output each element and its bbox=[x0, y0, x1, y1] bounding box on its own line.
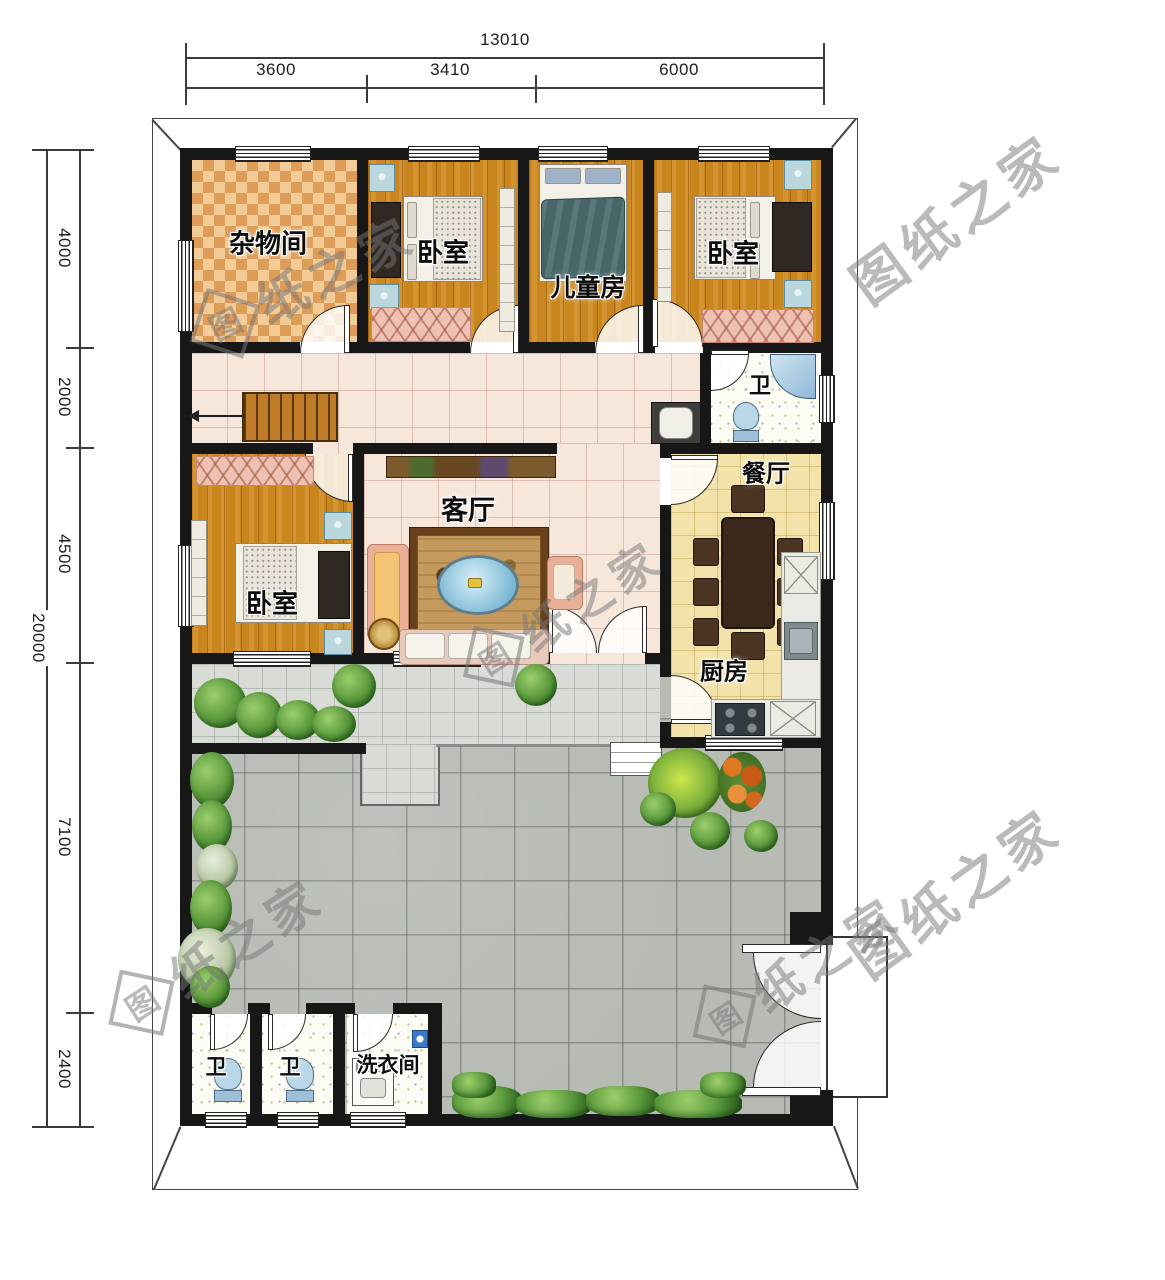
dining-table bbox=[721, 517, 775, 629]
dim-top-total-label: 13010 bbox=[477, 30, 533, 50]
kitchen-prep-area bbox=[784, 556, 818, 594]
dim-top-seg-label-1: 3600 bbox=[253, 60, 299, 80]
watermark-logo-icon: 图 bbox=[463, 626, 525, 688]
staircase bbox=[242, 392, 338, 442]
dim-left-seg-tick-4 bbox=[66, 1012, 94, 1014]
bedroom2-bench bbox=[702, 309, 814, 343]
dim-left-seg-label-2: 2000 bbox=[54, 374, 74, 420]
window-bedroom1-top bbox=[408, 146, 480, 162]
wall-h2-b bbox=[353, 443, 557, 454]
wall-h2-a bbox=[190, 443, 313, 454]
sofa-bottom-cushion-1 bbox=[405, 633, 445, 659]
south-hedge-3 bbox=[586, 1086, 660, 1116]
bath1-door-leaf bbox=[210, 1014, 215, 1050]
terrace-step bbox=[360, 744, 440, 806]
label-living: 客厅 bbox=[441, 489, 495, 528]
label-laundry: 洗衣间 bbox=[357, 1049, 420, 1079]
dim-top-seg-label-2: 3410 bbox=[427, 60, 473, 80]
dining-chair-left-1 bbox=[693, 538, 719, 566]
courtyard-bush-small-2 bbox=[690, 812, 730, 850]
label-bedroom-top-left: 卧室 bbox=[417, 233, 469, 270]
entry-door-bottom-leaf bbox=[742, 1087, 821, 1096]
dining-door-leaf bbox=[671, 455, 718, 460]
toilet-bath1-tank bbox=[214, 1090, 242, 1102]
window-storage-top bbox=[235, 146, 311, 162]
bedroom-middle-bench bbox=[196, 456, 314, 486]
dim-left-tick-top bbox=[32, 149, 94, 151]
kids-door-leaf bbox=[638, 305, 644, 353]
bedroom-middle-nightstand-bottom bbox=[324, 629, 352, 655]
terrace-shrub-4 bbox=[312, 706, 356, 742]
kids-pillow-2 bbox=[585, 168, 621, 184]
kitchen-sink-basin bbox=[789, 628, 813, 654]
window-bath-middle-right bbox=[819, 375, 835, 423]
label-bath-bottom-1: 卫 bbox=[206, 1051, 227, 1081]
bedroom2-nightstand-bottom bbox=[784, 280, 812, 308]
stairs-direction-arrow bbox=[198, 415, 244, 417]
dim-top-seg-tick-1 bbox=[366, 75, 368, 103]
bedroom1-wardrobe bbox=[499, 188, 515, 332]
dim-top-seg-tick-2 bbox=[535, 75, 537, 103]
label-bath-bottom-2: 卫 bbox=[280, 1051, 301, 1081]
kitchen-stove bbox=[715, 703, 765, 736]
bedroom-middle-nightstand-top bbox=[324, 512, 352, 540]
dim-left-seg-label-5: 2400 bbox=[54, 1046, 74, 1092]
label-kids-room: 儿童房 bbox=[550, 268, 625, 304]
watermark-logo-icon: 图 bbox=[108, 970, 174, 1036]
wall-bath1-bath2 bbox=[250, 1003, 262, 1114]
hall-vanity-basin bbox=[659, 407, 693, 439]
dim-left-total-label: 20000 bbox=[28, 610, 48, 666]
window-bedroom2-top bbox=[698, 146, 770, 162]
bath-middle-door-leaf bbox=[711, 350, 749, 355]
courtyard-bush-small-3 bbox=[744, 820, 778, 852]
wall-bedroom1-kids bbox=[518, 160, 529, 353]
dim-top-tick-right bbox=[823, 43, 825, 105]
window-laundry-bottom bbox=[350, 1112, 406, 1128]
bedroom2-wardrobe-left bbox=[657, 192, 672, 302]
bedroom1-bench bbox=[371, 307, 471, 342]
tv-console bbox=[386, 456, 556, 478]
dim-left-seg-tick-3 bbox=[66, 662, 94, 664]
courtyard-flowers bbox=[718, 752, 766, 812]
dim-top-total-line bbox=[186, 57, 824, 59]
dim-top-tick-left bbox=[185, 43, 187, 105]
dim-left-tick-bottom bbox=[32, 1126, 94, 1128]
south-hedge-6 bbox=[700, 1072, 746, 1098]
label-bedroom-middle: 卧室 bbox=[246, 584, 298, 621]
washing-machine-door bbox=[360, 1078, 386, 1098]
side-table-plant bbox=[368, 618, 400, 650]
window-kids-top bbox=[538, 146, 608, 162]
dim-left-seg-tick-2 bbox=[66, 447, 94, 449]
bedroom1-nightstand-top bbox=[369, 164, 395, 192]
terrace-shrub-2 bbox=[236, 692, 282, 738]
bedroom2-nightstand-top bbox=[784, 160, 812, 190]
wall-bath2-laundry bbox=[333, 1003, 345, 1114]
terrace-bush-round-1 bbox=[332, 664, 376, 708]
toilet-middle-bowl bbox=[733, 402, 759, 430]
wall-living-dining-a bbox=[660, 443, 671, 458]
laundry-door-leaf bbox=[353, 1014, 358, 1052]
toilet-middle-tank bbox=[733, 430, 759, 442]
coffee-table-item bbox=[468, 578, 482, 588]
wall-h2-c bbox=[671, 443, 821, 454]
dining-chair-left-2 bbox=[693, 578, 719, 606]
bath2-door-leaf bbox=[268, 1014, 273, 1050]
courtyard-bush-small-1 bbox=[640, 792, 676, 826]
window-dining-right bbox=[819, 502, 835, 580]
wall-h3-b bbox=[645, 653, 671, 664]
dim-left-seg-label-4: 7100 bbox=[54, 814, 74, 860]
bedroom-middle-dresser bbox=[318, 551, 350, 619]
laundry-soap-shelf bbox=[412, 1030, 428, 1048]
bedroom2-dresser bbox=[772, 202, 812, 272]
wall-h6-c bbox=[306, 1003, 355, 1014]
wall-bedroom-living bbox=[353, 443, 364, 664]
dim-left-seg-tick-1 bbox=[66, 347, 94, 349]
dim-left-seg-label-3: 4500 bbox=[54, 531, 74, 577]
dim-top-seg-line bbox=[186, 87, 824, 89]
floor-plan-canvas: 杂物间 卧室 儿童房 卧室 卫 餐厅 客厅 卧室 厨房 卫 卫 洗衣间 图 纸之… bbox=[0, 0, 1165, 1280]
dining-chair-left-3 bbox=[693, 618, 719, 646]
label-kitchen: 厨房 bbox=[700, 652, 748, 687]
watermark-logo-icon: 图 bbox=[693, 984, 757, 1048]
label-dining: 餐厅 bbox=[742, 454, 790, 489]
wall-living-dining-b bbox=[660, 505, 671, 677]
label-bath-middle: 卫 bbox=[749, 368, 771, 400]
dim-top-seg-label-3: 6000 bbox=[656, 60, 702, 80]
stairs-arrow-head bbox=[188, 410, 199, 422]
wall-h1-b bbox=[348, 342, 470, 353]
south-hedge-5 bbox=[452, 1072, 496, 1098]
storage-door-leaf bbox=[344, 305, 350, 353]
window-bedroom-middle-south bbox=[233, 651, 311, 667]
dim-left-seg-label-1: 4000 bbox=[54, 225, 74, 271]
dining-chair-top bbox=[731, 485, 765, 513]
window-bath2-bottom bbox=[277, 1112, 319, 1128]
dim-left-seg-line bbox=[79, 150, 81, 1127]
bedroom-middle-wardrobe bbox=[191, 520, 207, 626]
toilet-bath2-tank bbox=[286, 1090, 314, 1102]
kitchen-hatch-area bbox=[770, 701, 816, 736]
wall-hall-bath bbox=[700, 353, 711, 443]
living-terrace-door-right-leaf bbox=[642, 606, 647, 653]
watermark-top-right: 图纸之家 bbox=[832, 112, 1076, 319]
window-bath1-bottom bbox=[205, 1112, 247, 1128]
bedroom2-door-leaf bbox=[652, 299, 658, 347]
wall-h1-c bbox=[518, 342, 595, 353]
kids-pillow-1 bbox=[545, 168, 581, 184]
watermark-text: 图纸之家 bbox=[832, 112, 1076, 319]
wall-laundry-right bbox=[428, 1003, 442, 1114]
label-bedroom-top-right: 卧室 bbox=[707, 234, 759, 271]
south-hedge-2 bbox=[516, 1090, 592, 1118]
bedroom-middle-door-leaf bbox=[348, 454, 353, 502]
